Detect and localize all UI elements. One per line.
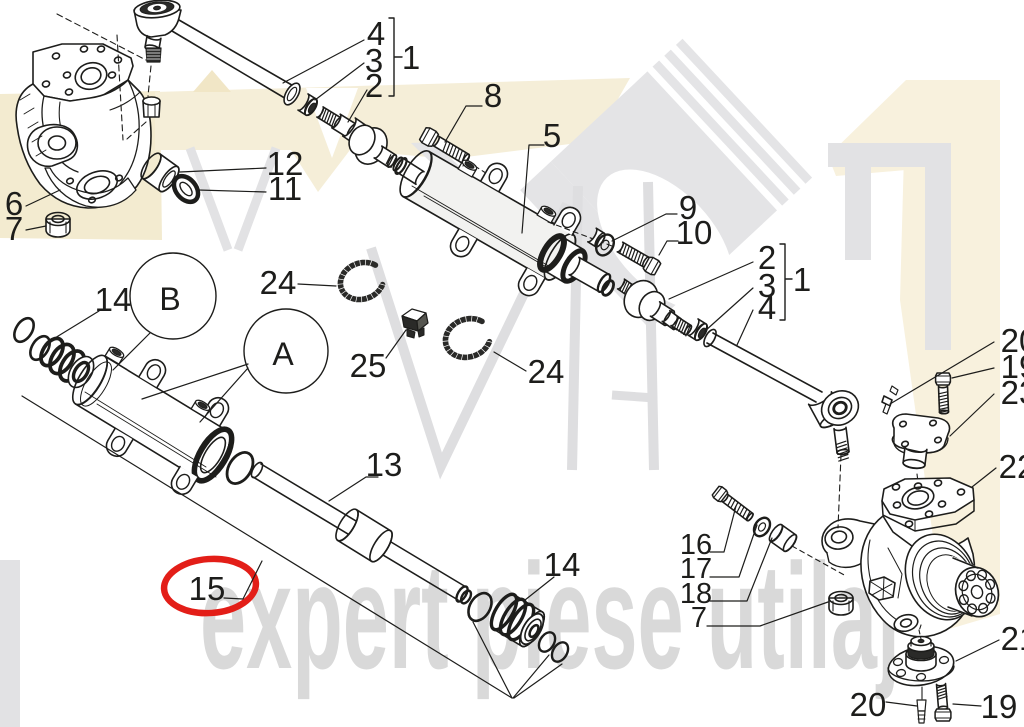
svg-text:7: 7: [5, 210, 23, 247]
svg-text:14: 14: [95, 281, 132, 318]
svg-text:15: 15: [189, 570, 226, 607]
svg-text:22: 22: [999, 448, 1024, 485]
svg-text:8: 8: [484, 77, 502, 114]
svg-text:7: 7: [691, 602, 707, 634]
svg-text:20: 20: [850, 686, 887, 723]
svg-text:1: 1: [402, 39, 420, 76]
svg-text:4: 4: [758, 289, 776, 326]
svg-text:A: A: [272, 336, 294, 372]
svg-text:10: 10: [676, 214, 713, 251]
svg-text:19: 19: [981, 688, 1018, 725]
svg-text:11: 11: [268, 170, 302, 207]
svg-text:2: 2: [365, 67, 383, 104]
svg-text:23: 23: [1001, 374, 1024, 411]
svg-text:25: 25: [350, 347, 387, 384]
svg-text:1: 1: [793, 261, 811, 298]
svg-text:5: 5: [543, 117, 561, 154]
svg-text:24: 24: [528, 353, 565, 390]
svg-text:24: 24: [260, 264, 297, 301]
svg-text:B: B: [159, 281, 180, 317]
svg-text:21: 21: [1001, 620, 1024, 657]
svg-text:14: 14: [544, 546, 581, 583]
